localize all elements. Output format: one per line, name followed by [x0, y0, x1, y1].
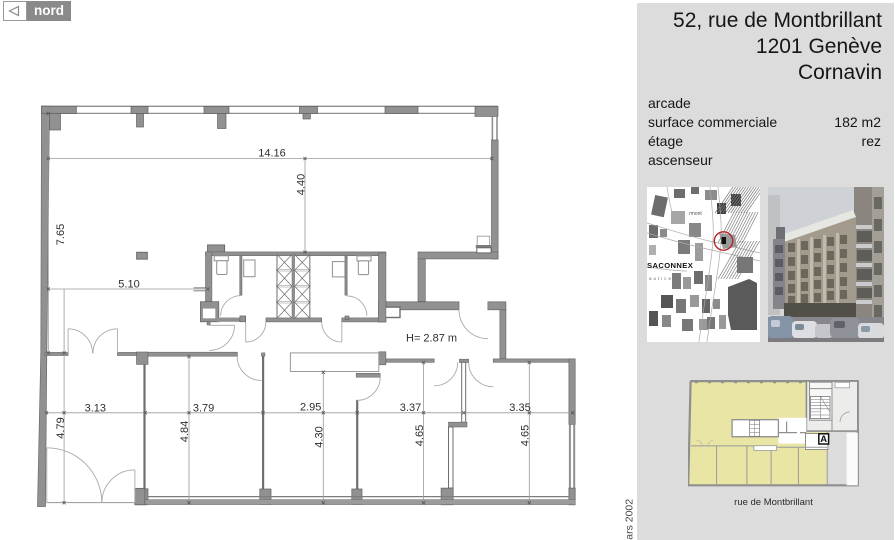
svg-text:3.79: 3.79 [193, 402, 214, 414]
svg-text:4.84: 4.84 [179, 421, 191, 442]
svg-text:2.95: 2.95 [300, 402, 321, 414]
svg-text:3.37: 3.37 [400, 402, 421, 414]
svg-text:H= 2.87 m: H= 2.87 m [406, 333, 457, 345]
svg-text:4.30: 4.30 [313, 426, 325, 447]
svg-text:14.16: 14.16 [258, 148, 286, 160]
svg-text:4.79: 4.79 [55, 417, 67, 438]
svg-text:4.65: 4.65 [414, 425, 426, 446]
svg-text:3.13: 3.13 [85, 402, 106, 414]
svg-text:4.65: 4.65 [520, 425, 532, 446]
svg-text:3.35: 3.35 [509, 402, 530, 414]
svg-text:A: A [820, 434, 827, 445]
svg-text:4.40: 4.40 [295, 174, 307, 195]
svg-text:rmont: rmont [689, 211, 702, 217]
svg-text:SACONNEX: SACONNEX [647, 261, 693, 270]
svg-text:autice: autice [649, 276, 673, 281]
svg-text:5.10: 5.10 [118, 278, 139, 290]
svg-text:7.65: 7.65 [55, 224, 67, 245]
